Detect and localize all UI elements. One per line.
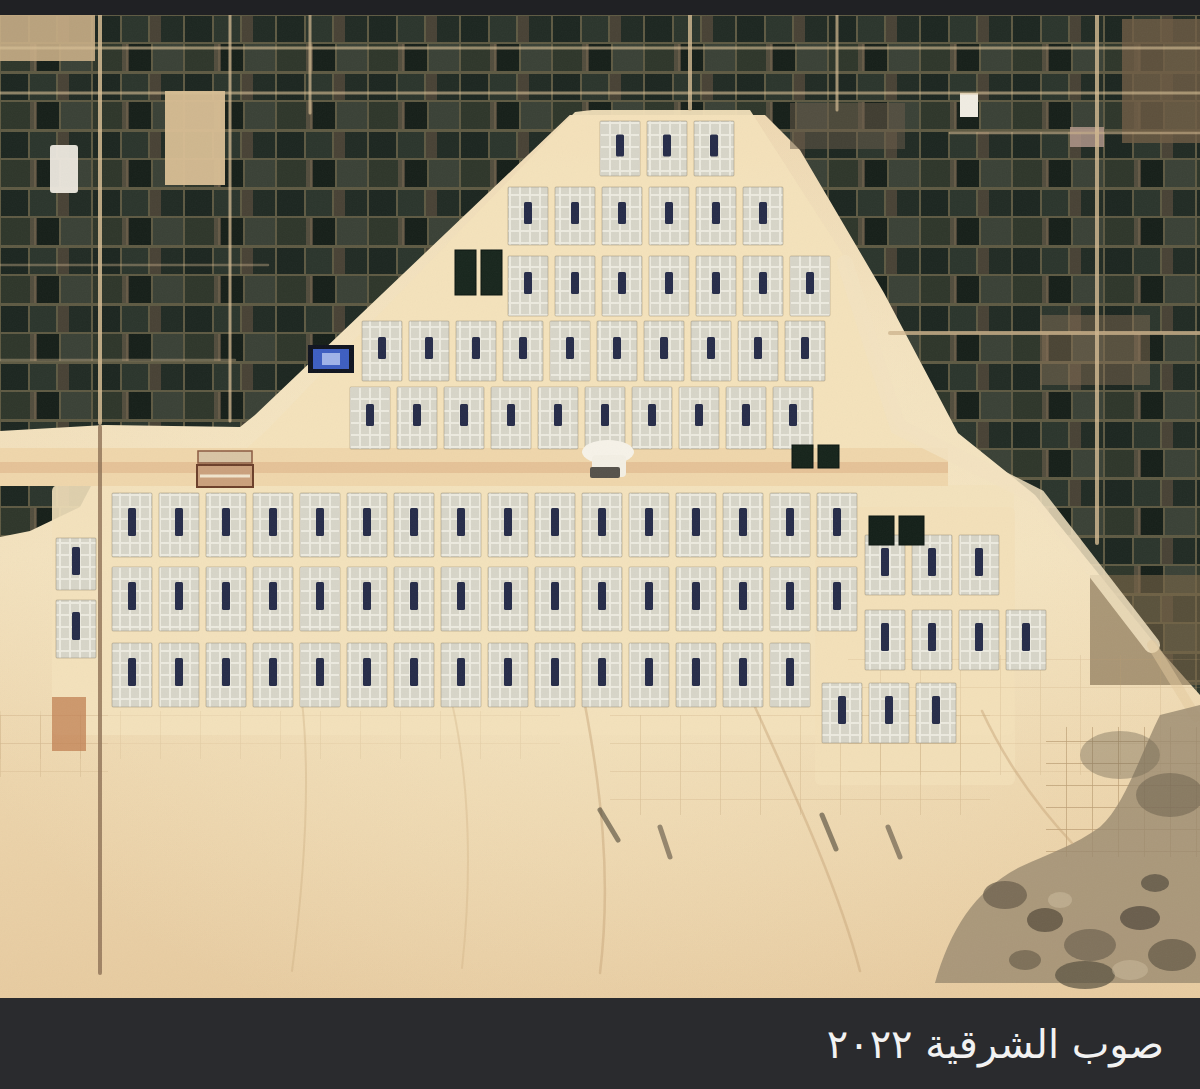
photo-frame: صوب الشرقية ٢٠٢٢ — [0, 0, 1200, 1089]
satellite-photo — [0, 15, 1200, 998]
satellite-photo-canvas — [0, 15, 1200, 998]
photo-caption: صوب الشرقية ٢٠٢٢ — [791, 1024, 1200, 1064]
grain-overlay — [0, 15, 1200, 998]
bottom-letterbox-bar: صوب الشرقية ٢٠٢٢ — [0, 998, 1200, 1089]
top-letterbox-bar — [0, 0, 1200, 15]
